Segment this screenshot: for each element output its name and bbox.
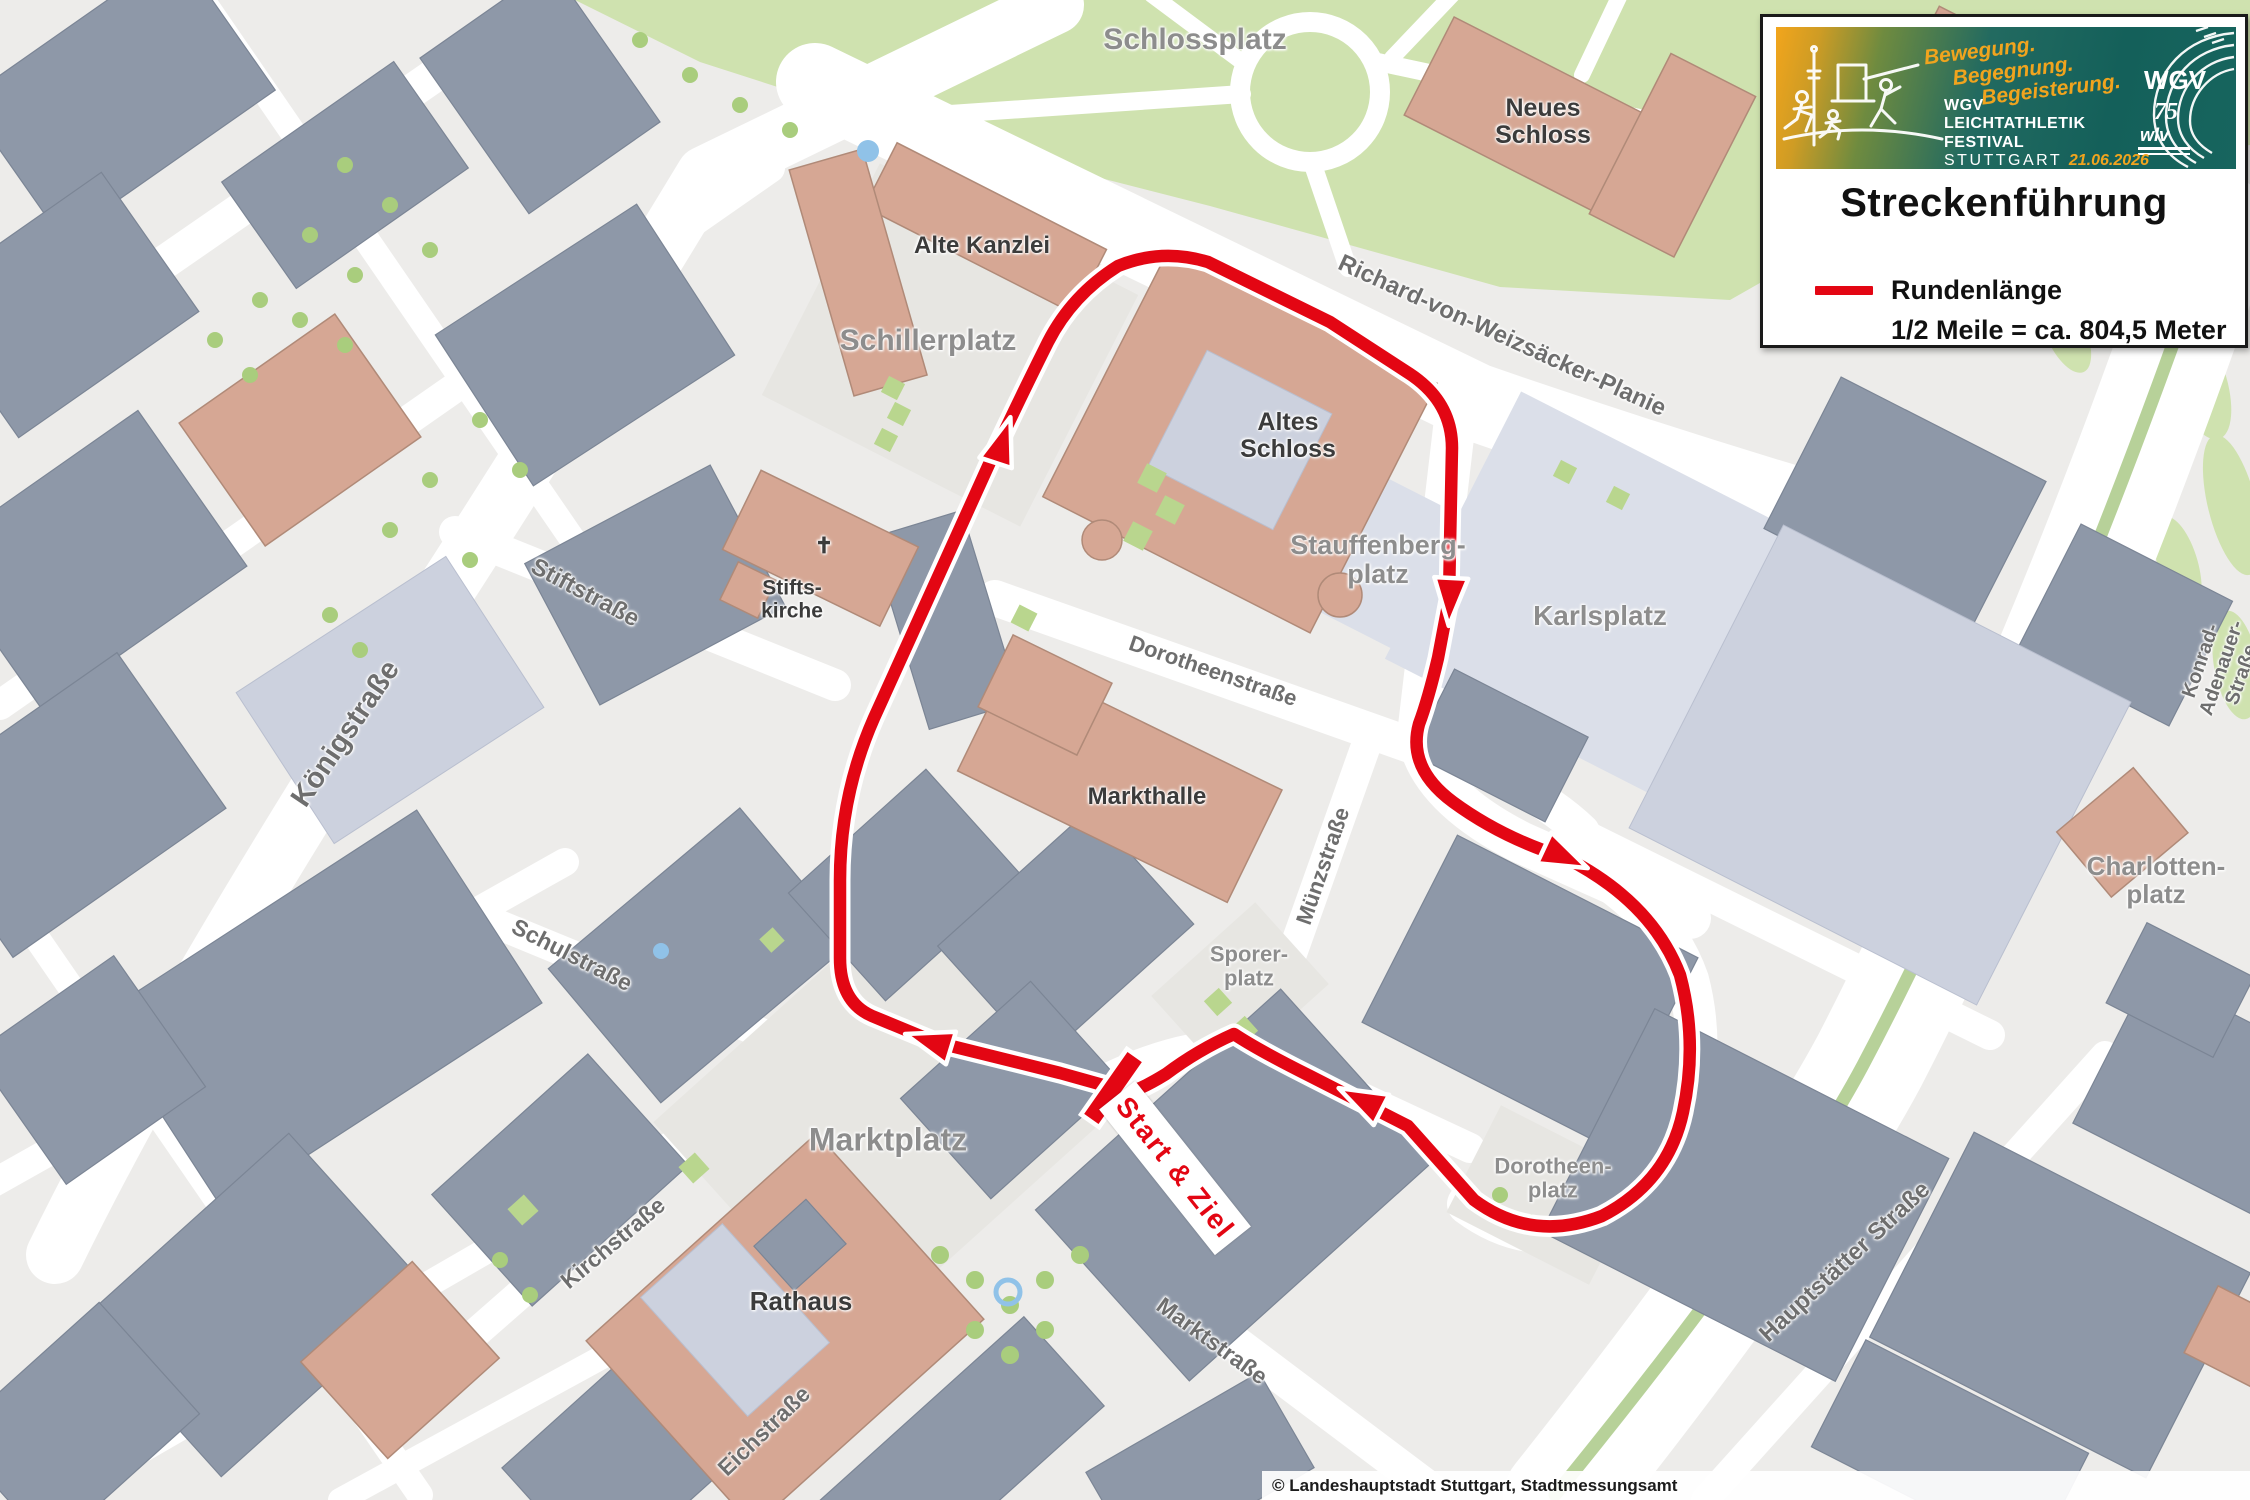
event-date: 21.06.2026 [2069,152,2149,169]
legend-box: WGV 75 wlv Bewegung. Begegnung. Begeiste… [1760,14,2248,348]
event-line-2: LEICHTATHLETIK [1944,115,2149,133]
event-city: STUTTGART [1944,152,2062,169]
legend-title: Streckenführung [1763,181,2245,226]
legend-lap-length: 1/2 Meile = ca. 804,5 Meter [1891,315,2226,346]
anniversary-75-text: 75 [2154,99,2178,125]
event-logo-banner: WGV 75 wlv Bewegung. Begegnung. Begeiste… [1776,27,2236,169]
event-line-1: WGV [1944,97,2149,115]
event-line-3: FESTIVAL [1944,134,2149,152]
legend-row: Rundenlänge [1815,275,2062,306]
legend-line-label: Rundenlänge [1891,275,2062,306]
copyright-bar: © Landeshauptstadt Stuttgart, Stadtmessu… [1262,1471,2250,1500]
route-line-swatch [1815,286,1873,295]
event-title-block: WGV LEICHTATHLETIK FESTIVAL STUTTGART 21… [1944,97,2149,169]
course-map: SchlossplatzNeues SchlossAlte KanzleiSch… [0,0,2250,1500]
